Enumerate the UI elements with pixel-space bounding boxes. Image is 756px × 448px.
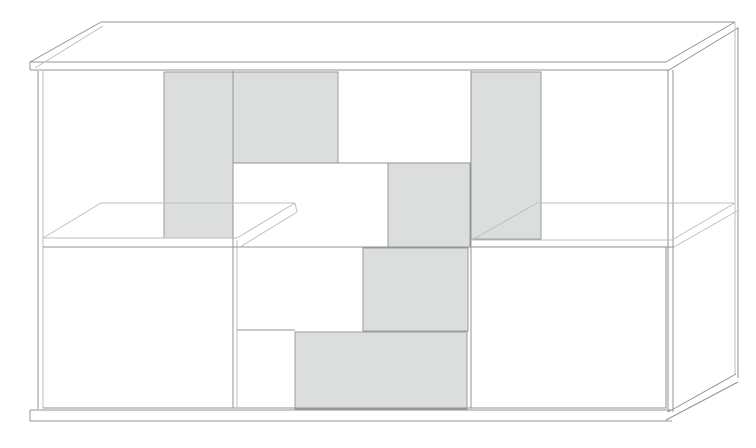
sideboard-svg	[0, 0, 756, 448]
top-slab-surface	[30, 22, 735, 62]
gray-door-center	[363, 248, 468, 331]
product-illustration-page	[0, 0, 756, 448]
glass-door-top-right	[471, 72, 541, 239]
gray-door-top-center-left	[233, 72, 338, 163]
gray-door-mid-center-right	[388, 163, 470, 247]
gray-door-bottom-center	[295, 332, 467, 409]
glass-door-top-left	[164, 72, 233, 238]
